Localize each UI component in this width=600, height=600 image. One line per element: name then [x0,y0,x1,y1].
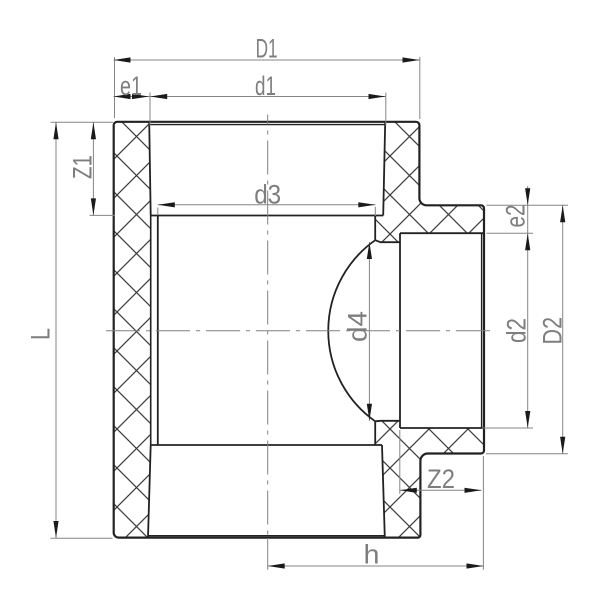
svg-text:d3: d3 [254,180,281,210]
svg-text:D1: D1 [256,34,278,64]
svg-text:d4: d4 [343,311,373,342]
svg-text:e2: e2 [501,205,531,228]
svg-text:d1: d1 [255,71,276,101]
svg-text:h: h [364,540,380,570]
svg-text:D2: D2 [538,317,568,345]
svg-text:Z2: Z2 [427,464,455,494]
svg-text:d2: d2 [502,318,532,343]
svg-text:e1: e1 [120,71,142,101]
svg-text:Z1: Z1 [68,155,98,179]
svg-text:L: L [26,328,56,340]
